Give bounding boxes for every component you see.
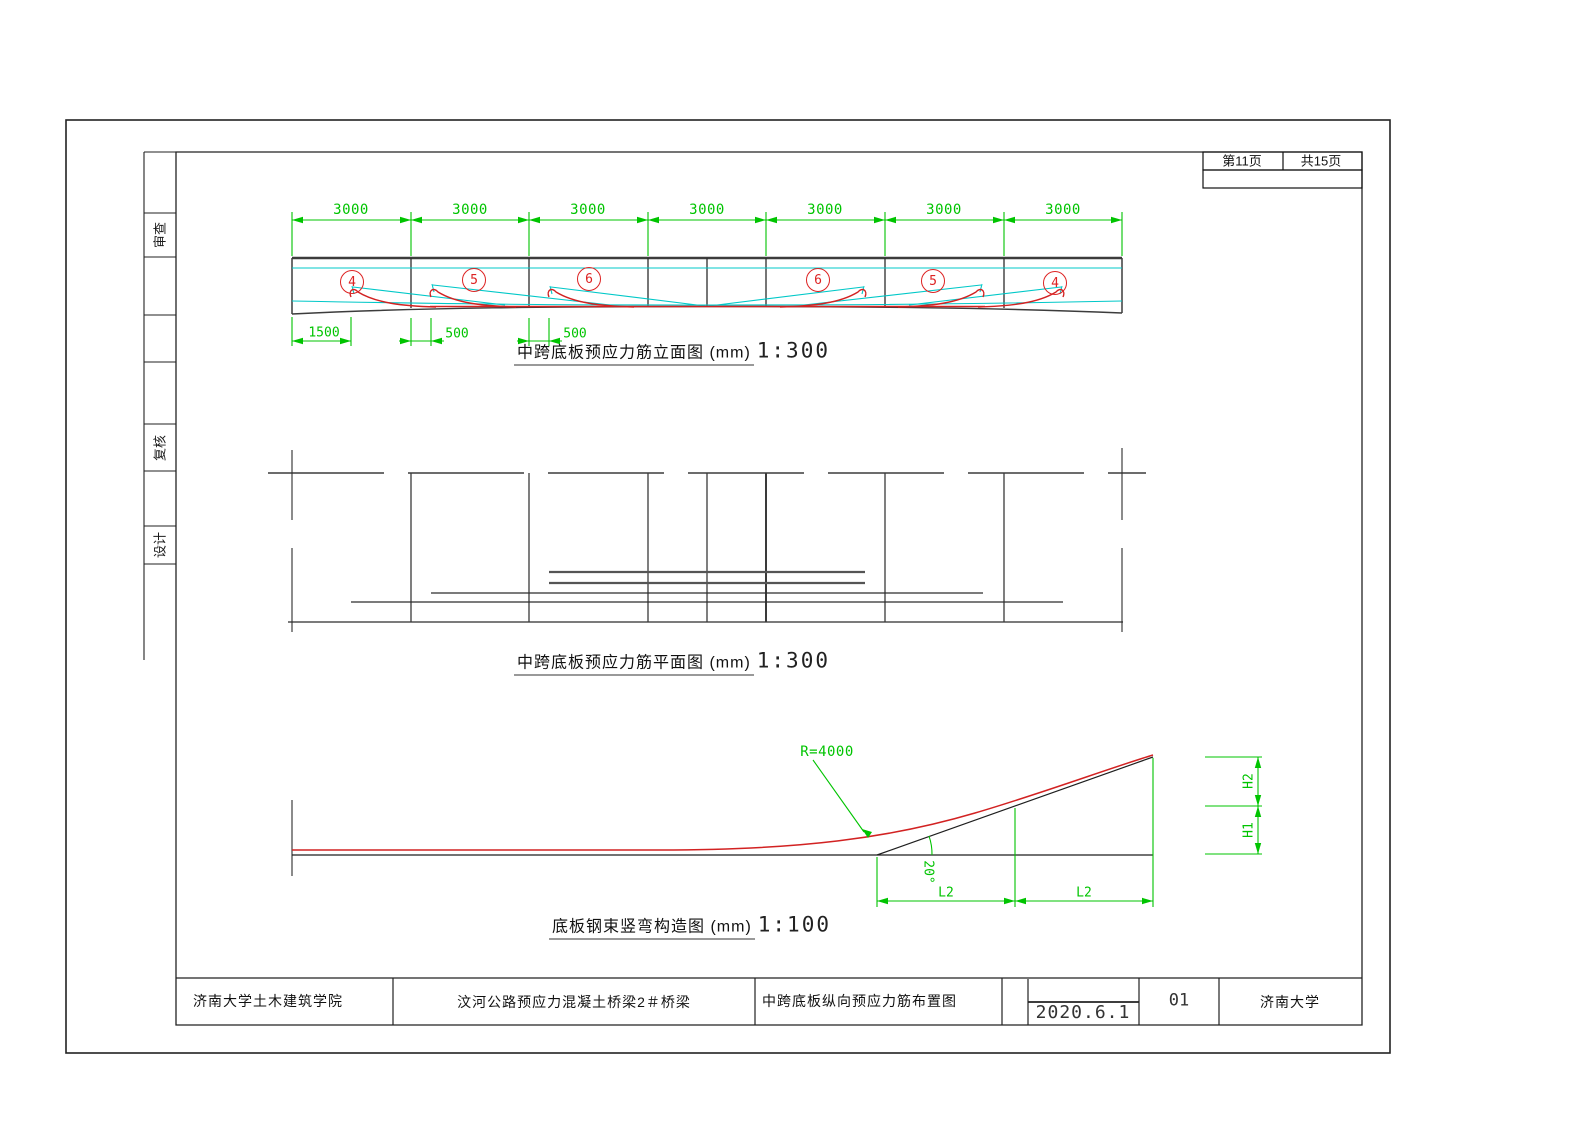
titleblock-drawing-title: 中跨底板纵向预应力筋布置图 — [762, 994, 957, 1008]
dim-500-2: 500 — [563, 328, 586, 341]
drawing-linework — [0, 0, 1588, 1122]
elevation-title: 中跨底板预应力筋立面图 (mm) 1:300 — [514, 341, 830, 366]
detail-title-scale: 1:100 — [758, 915, 831, 936]
detail-dimensions — [813, 757, 1262, 907]
elevation-title-scale: 1:300 — [757, 341, 830, 362]
dim-L2-2: L2 — [1076, 887, 1092, 900]
tendon-label-6-right: 6 — [806, 268, 830, 292]
tendon-label-6-left: 6 — [577, 267, 601, 291]
tendon-label-4-left: 4 — [340, 270, 364, 294]
plan-title-scale: 1:300 — [757, 651, 830, 672]
elevation-view — [292, 212, 1122, 346]
detail-title-text: 底板钢束竖弯构造图 (mm) — [549, 920, 755, 940]
sidebar-item-design: 设计 — [154, 532, 167, 558]
dim-3000-5: 3000 — [807, 203, 843, 217]
dim-H1: H1 — [1243, 822, 1256, 838]
dim-L2-1: L2 — [938, 887, 954, 900]
titleblock-sheet-number: 01 — [1169, 993, 1189, 1010]
tendon-label-5-left: 5 — [462, 268, 486, 292]
tendon-label-4-right: 4 — [1043, 271, 1067, 295]
titleblock-project: 汶河公路预应力混凝土桥梁2＃桥梁 — [457, 995, 691, 1009]
page-total: 共15页 — [1301, 155, 1341, 168]
plan-title-text: 中跨底板预应力筋平面图 (mm) — [514, 656, 754, 676]
detail-title: 底板钢束竖弯构造图 (mm) 1:100 — [549, 915, 831, 940]
dim-1500: 1500 — [308, 327, 339, 340]
dim-H2: H2 — [1243, 773, 1256, 789]
dim-3000-1: 3000 — [333, 203, 369, 217]
detail-view — [292, 755, 1262, 907]
sidebar-item-check: 复核 — [154, 435, 167, 461]
titleblock-university: 济南大学 — [1260, 995, 1320, 1009]
titleblock-organization: 济南大学土木建筑学院 — [193, 994, 343, 1008]
tendon-label-5-right: 5 — [921, 269, 945, 293]
radius-label: R=4000 — [800, 745, 854, 759]
drawing-sheet: 第11页 共15页 审查 复核 设计 3000 3000 3000 3000 3… — [0, 0, 1588, 1122]
dim-3000-4: 3000 — [689, 203, 725, 217]
plan-view — [268, 448, 1146, 632]
dim-3000-2: 3000 — [452, 203, 488, 217]
dim-3000-7: 3000 — [1045, 203, 1081, 217]
page-number: 第11页 — [1222, 155, 1262, 168]
elevation-title-text: 中跨底板预应力筋立面图 (mm) — [514, 346, 754, 366]
plan-title: 中跨底板预应力筋平面图 (mm) 1:300 — [514, 651, 830, 676]
dim-3000-6: 3000 — [926, 203, 962, 217]
titleblock-date: 2020.6.1 — [1036, 1004, 1131, 1022]
sheet-border — [66, 120, 1390, 1053]
dim-500-1: 500 — [445, 328, 468, 341]
angle-label: 20° — [922, 860, 935, 883]
sidebar-item-review: 审查 — [154, 222, 167, 248]
dim-3000-3: 3000 — [570, 203, 606, 217]
